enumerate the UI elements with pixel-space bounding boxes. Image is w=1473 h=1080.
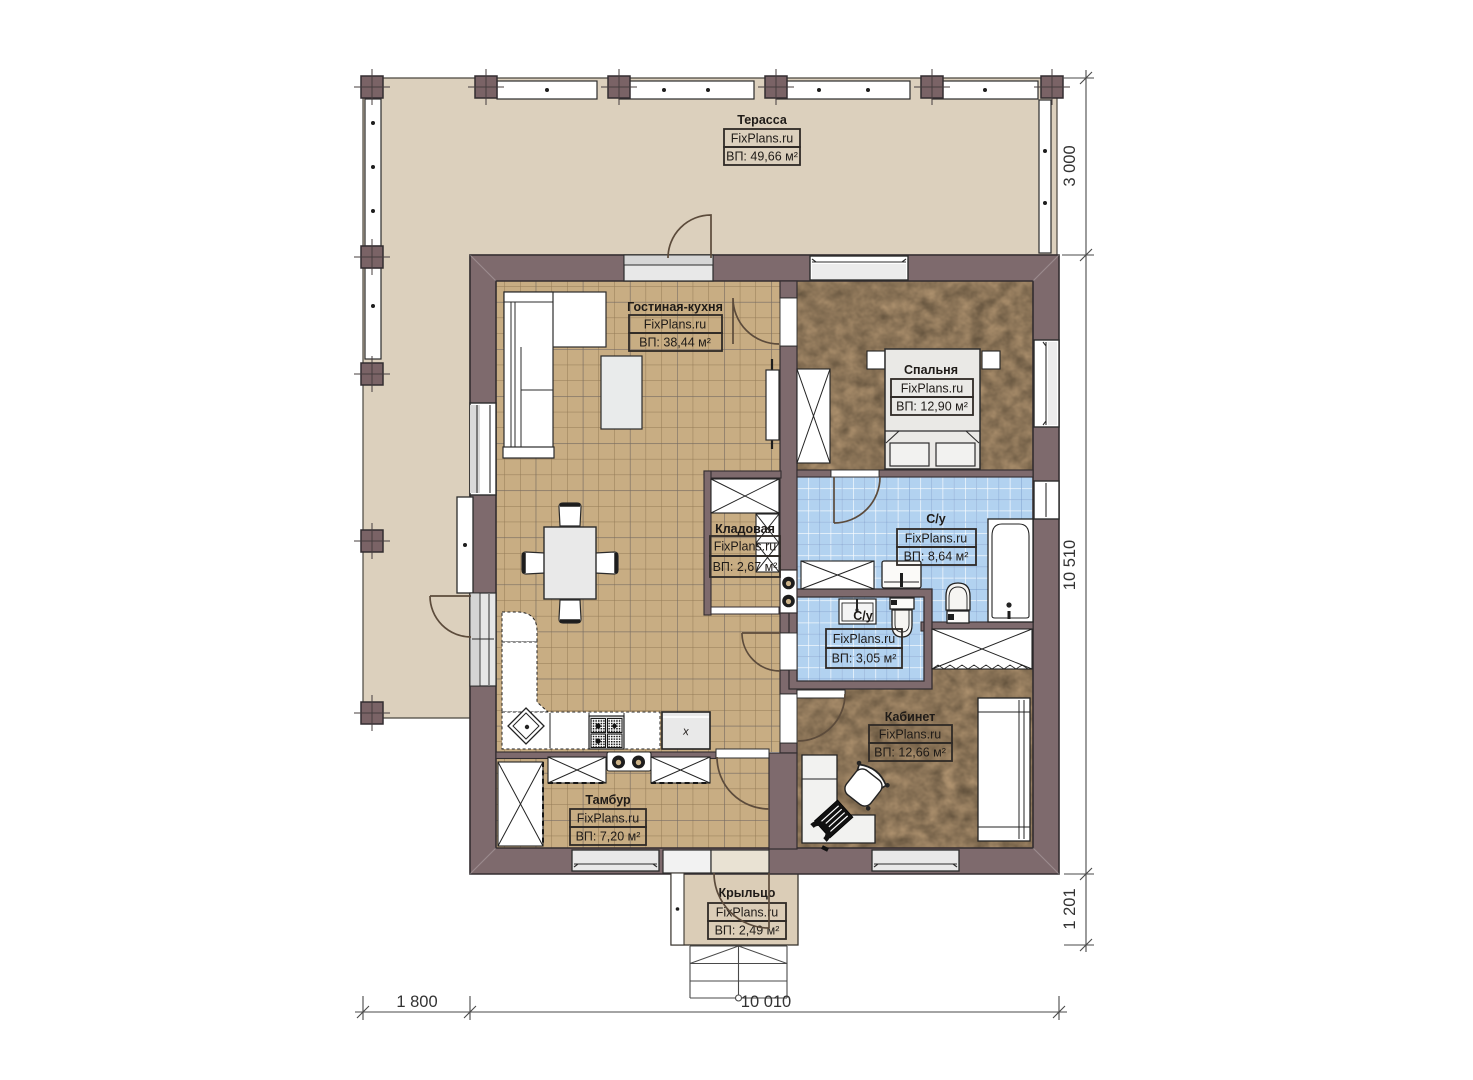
svg-text:Терасса: Терасса (737, 113, 788, 127)
svg-text:10 010: 10 010 (741, 993, 791, 1011)
svg-text:1 201: 1 201 (1061, 888, 1079, 929)
svg-text:FixPlans.ru: FixPlans.ru (879, 728, 942, 742)
svg-text:FixPlans.ru: FixPlans.ru (905, 532, 968, 546)
svg-text:FixPlans.ru: FixPlans.ru (901, 382, 964, 396)
svg-text:Спальня: Спальня (904, 363, 958, 377)
svg-text:3 000: 3 000 (1061, 145, 1079, 186)
svg-text:С/у: С/у (926, 512, 946, 526)
svg-text:ВП: 12,90 м²: ВП: 12,90 м² (896, 400, 968, 414)
svg-text:ВП: 38,44 м²: ВП: 38,44 м² (639, 336, 711, 350)
svg-text:10 510: 10 510 (1061, 540, 1079, 590)
svg-text:ВП: 7,20 м²: ВП: 7,20 м² (576, 830, 641, 844)
svg-text:ВП: 12,66 м²: ВП: 12,66 м² (874, 746, 946, 760)
svg-text:FixPlans.ru: FixPlans.ru (833, 632, 896, 646)
svg-text:ВП: 2,67 м²: ВП: 2,67 м² (713, 560, 778, 574)
svg-text:Кладовая: Кладовая (715, 522, 775, 536)
svg-text:Кабинет: Кабинет (885, 710, 936, 724)
svg-text:FixPlans.ru: FixPlans.ru (577, 812, 640, 826)
svg-text:FixPlans.ru: FixPlans.ru (714, 540, 777, 554)
svg-text:ВП: 3,05 м²: ВП: 3,05 м² (832, 652, 897, 666)
svg-text:С/у: С/у (853, 609, 873, 623)
svg-text:FixPlans.ru: FixPlans.ru (644, 318, 707, 332)
svg-text:Тамбур: Тамбур (585, 793, 631, 807)
svg-text:ВП: 49,66 м²: ВП: 49,66 м² (726, 150, 798, 164)
svg-text:ВП: 8,64 м²: ВП: 8,64 м² (904, 550, 969, 564)
svg-text:FixPlans.ru: FixPlans.ru (731, 132, 794, 146)
svg-text:Гостиная-кухня: Гостиная-кухня (627, 300, 723, 314)
svg-text:1 800: 1 800 (396, 993, 437, 1011)
svg-text:Крыльцо: Крыльцо (719, 886, 776, 900)
